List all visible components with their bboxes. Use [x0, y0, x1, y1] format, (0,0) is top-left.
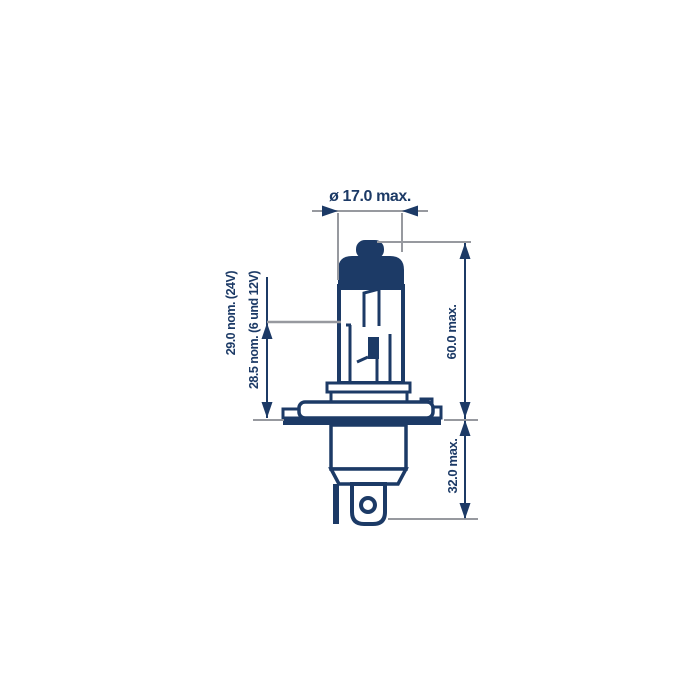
arrowhead-left-icon	[402, 206, 418, 217]
side-contact-blade	[333, 484, 339, 524]
mounting-flange	[283, 399, 441, 425]
base-body	[331, 425, 406, 469]
arrowhead-up-icon	[460, 243, 471, 259]
bulb-black-cap	[338, 256, 404, 290]
arrowhead-down-icon	[262, 402, 273, 418]
light-center-6-12v-label: 28.5 nom. (6 und 12V)	[247, 271, 261, 389]
bulb-dimension-diagram: ø 17.0 max. 60.0 max. 32.0 max. 29.0 nom…	[0, 0, 700, 700]
base-length-label: 32.0 max.	[445, 439, 460, 494]
low-beam-filament-shield	[368, 337, 379, 359]
arrowhead-up-icon	[262, 323, 273, 339]
arrowhead-right-icon	[322, 206, 338, 217]
overall-length-label: 60.0 max.	[444, 305, 459, 360]
dimension-light-center: 29.0 nom. (24V) 28.5 nom. (6 und 12V)	[224, 271, 341, 420]
arrowhead-down-icon	[460, 503, 471, 519]
arrowhead-down-icon	[460, 402, 471, 418]
connector-lug-hole	[361, 498, 375, 512]
flange-disc	[299, 402, 433, 418]
diagram-svg: ø 17.0 max. 60.0 max. 32.0 max. 29.0 nom…	[0, 0, 700, 700]
arrowhead-up-icon	[460, 420, 471, 436]
base-taper-ring	[331, 469, 406, 484]
light-center-24v-label: 29.0 nom. (24V)	[224, 271, 238, 356]
diameter-label: ø 17.0 max.	[329, 188, 411, 205]
